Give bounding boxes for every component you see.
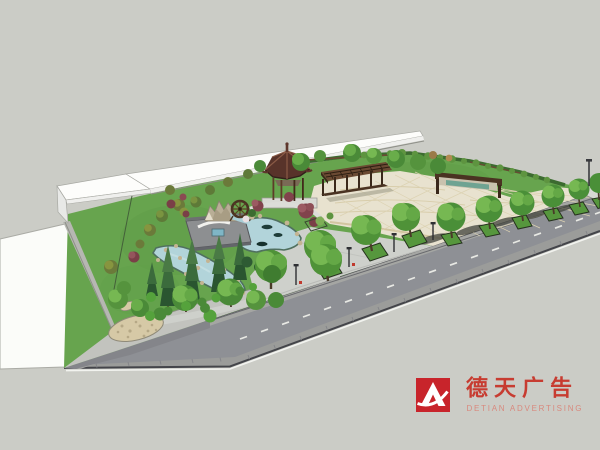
svg-text:德天广告: 德天广告 (466, 376, 578, 401)
svg-text:DETIAN ADVERTISING: DETIAN ADVERTISING (467, 404, 584, 413)
